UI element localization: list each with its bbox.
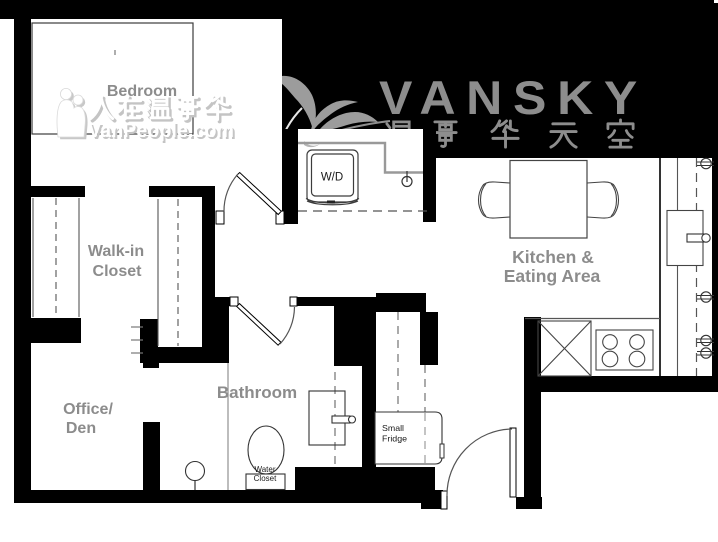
svg-text:Small: Small bbox=[382, 423, 404, 433]
svg-text:Eating Area: Eating Area bbox=[504, 266, 601, 286]
svg-text:Kitchen &: Kitchen & bbox=[512, 247, 594, 267]
svg-text:Closet: Closet bbox=[93, 263, 143, 280]
svg-text:Bathroom: Bathroom bbox=[217, 383, 297, 402]
svg-text:Office/: Office/ bbox=[63, 401, 113, 418]
svg-text:Water: Water bbox=[254, 465, 275, 474]
svg-text:VanPeople.com: VanPeople.com bbox=[88, 120, 234, 142]
svg-text:VANSKY: VANSKY bbox=[379, 71, 648, 124]
svg-text:W/D: W/D bbox=[321, 172, 343, 184]
svg-text:Den: Den bbox=[66, 420, 96, 437]
svg-text:Fridge: Fridge bbox=[382, 434, 407, 444]
svg-text:Walk-in: Walk-in bbox=[88, 243, 144, 260]
svg-text:Closet: Closet bbox=[254, 474, 277, 483]
